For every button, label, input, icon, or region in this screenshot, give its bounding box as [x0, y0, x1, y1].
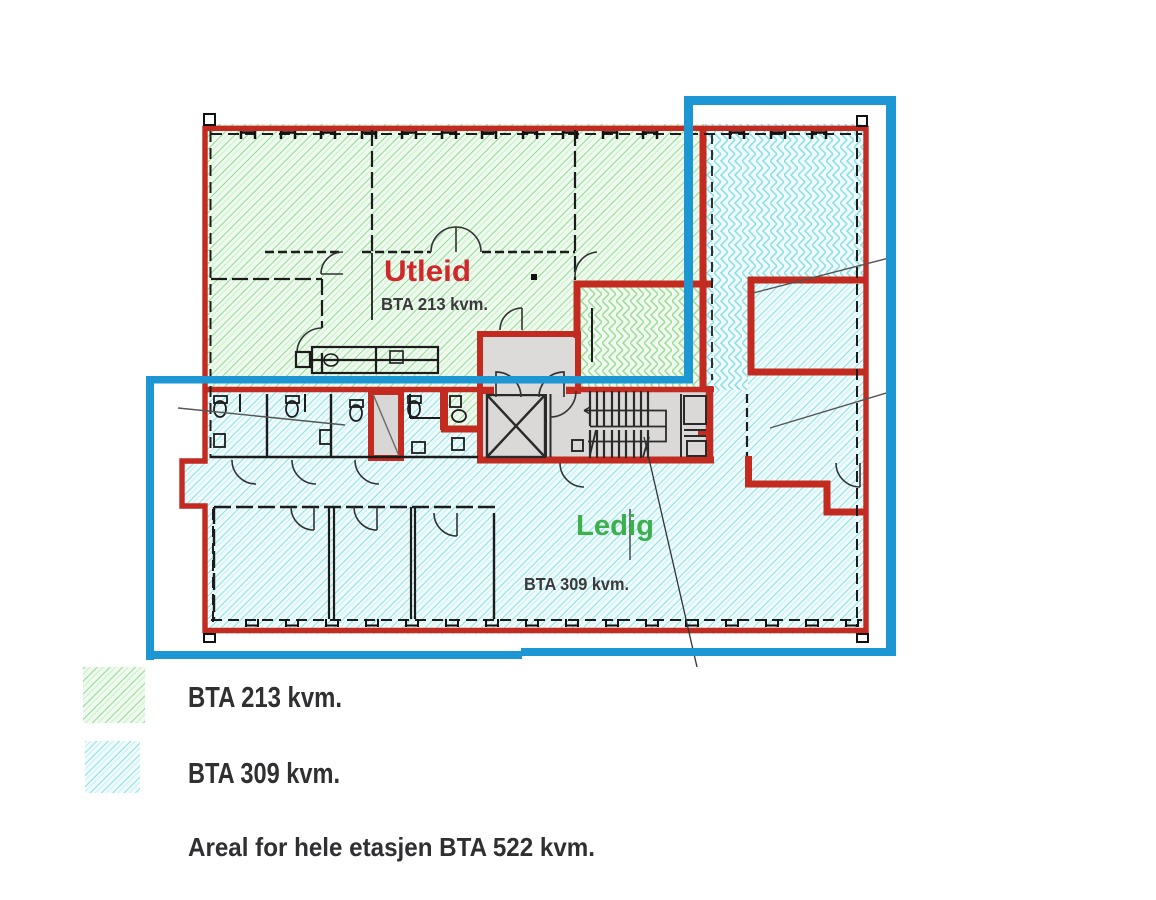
svg-text:Areal for hele etasjen BTA 522: Areal for hele etasjen BTA 522 kvm.	[188, 832, 595, 862]
svg-text:Utleid: Utleid	[384, 255, 471, 288]
svg-text:Ledig: Ledig	[576, 510, 654, 542]
svg-text:BTA 309 kvm.: BTA 309 kvm.	[188, 758, 340, 790]
svg-text:BTA 213 kvm.: BTA 213 kvm.	[188, 682, 342, 714]
svg-text:BTA 213 kvm.: BTA 213 kvm.	[381, 294, 488, 314]
svg-text:BTA 309 kvm.: BTA 309 kvm.	[524, 574, 629, 594]
